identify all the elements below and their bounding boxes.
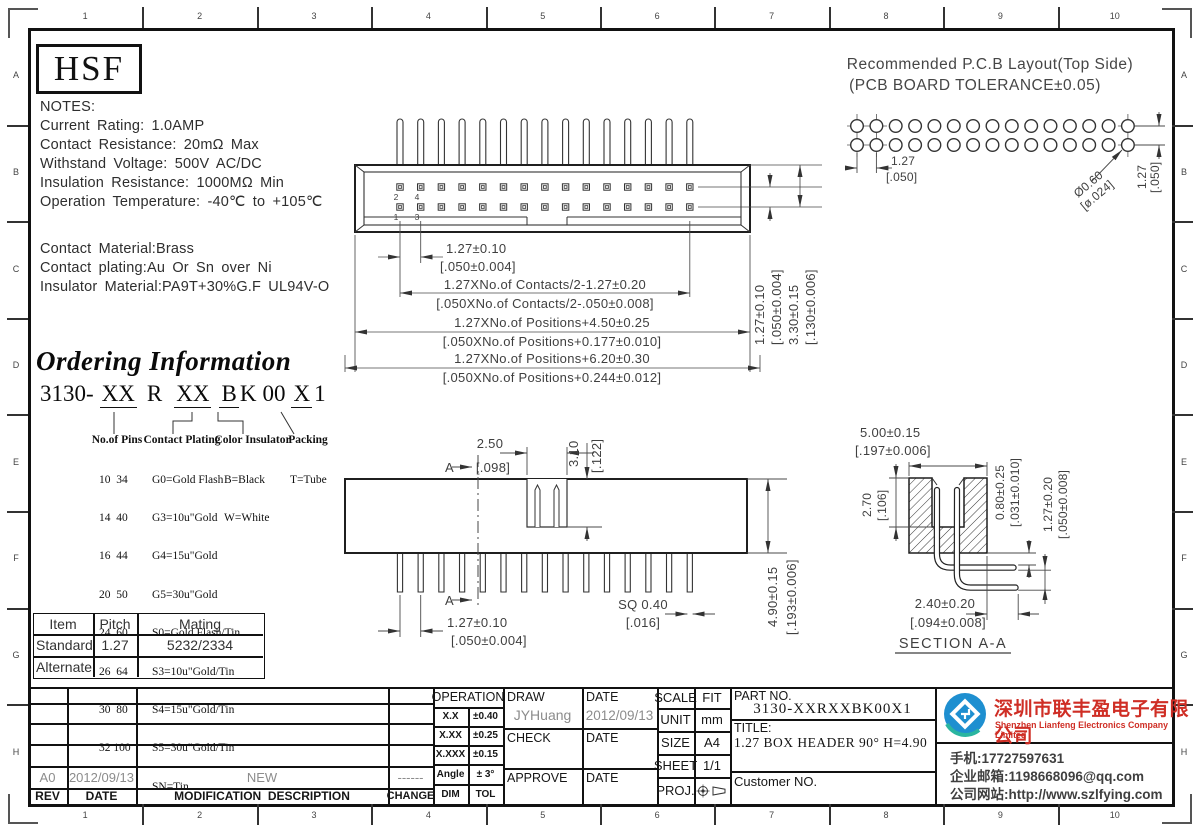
hole-row-2 — [851, 139, 1134, 152]
material-line: Contact Material:Brass — [40, 240, 370, 259]
section-drawing: 5.00±0.15 [.197±0.006] 2.70 [.106] 0.80±… — [855, 420, 1172, 665]
ordering-color-list: B=Black W=White — [224, 448, 269, 550]
contact — [687, 204, 693, 210]
hole — [870, 139, 883, 152]
pcb-layout-drawing: 1.27 [.050] Ø0.60 [ø.024] 1.27 [.050] — [845, 95, 1172, 245]
frame-row-label: C — [11, 264, 21, 274]
hole — [851, 139, 864, 152]
contact — [521, 204, 527, 210]
pin-number: 2 — [394, 192, 399, 202]
tolerance-value: ± 3° — [468, 764, 503, 784]
tolerance-label: DIM — [433, 784, 468, 804]
code-base: 3130- — [40, 381, 94, 407]
frame-row-label: H — [1179, 747, 1189, 757]
corner-mark — [1162, 822, 1192, 824]
frame-col-label: 1 — [80, 11, 90, 21]
table-cell: 5232/2334 — [137, 634, 263, 656]
unit-value: mm — [694, 708, 730, 731]
contact — [397, 204, 403, 210]
contact — [480, 204, 486, 210]
contact — [625, 184, 631, 190]
contact — [687, 184, 693, 190]
frame-row-label: E — [11, 457, 21, 467]
dim-label: [.050±0.004] — [440, 259, 516, 274]
hole — [889, 120, 902, 133]
operation-header: OPERATION — [433, 687, 503, 707]
frame-col-label: 8 — [881, 11, 891, 21]
dim-label: 3.30±0.15 — [786, 285, 801, 345]
frame-col-label: 3 — [309, 11, 319, 21]
list-item: B=Black — [224, 474, 269, 487]
grid-line — [28, 687, 1172, 689]
list-item: S4=15u"Gold/Tin — [152, 704, 240, 717]
hole — [986, 120, 999, 133]
third-angle-icon — [696, 784, 728, 798]
contact — [480, 184, 486, 190]
contact — [542, 204, 548, 210]
ordering-title: Ordering Information — [36, 346, 291, 377]
hole — [1102, 139, 1115, 152]
list-item: 20 50 — [99, 589, 131, 602]
dim-label: 5.00±0.15 — [860, 425, 920, 440]
pin — [604, 119, 610, 165]
hsf-logo: HSF — [36, 44, 142, 94]
check-label: CHECK — [507, 731, 551, 745]
grid-line — [503, 728, 657, 730]
frame-row-label: G — [11, 650, 21, 660]
frame-tick — [943, 7, 945, 28]
pin — [522, 553, 527, 592]
contact — [418, 184, 424, 190]
frame-tick — [142, 804, 144, 825]
pin — [667, 553, 672, 592]
code-color: B — [219, 381, 238, 408]
frame-col-label: 7 — [767, 810, 777, 820]
contact — [438, 204, 444, 210]
dim-label: 1.27XNo.of Contacts/2-1.27±0.20 — [444, 277, 646, 292]
corner-mark — [8, 8, 38, 10]
dim-label: [.050XNo.of Contacts/2-.050±0.008] — [436, 296, 654, 311]
frame-row-label: A — [11, 70, 21, 80]
frame-tick — [142, 7, 144, 28]
dim-label: [.050] — [886, 170, 917, 184]
frame-tick — [1172, 221, 1193, 223]
corner-mark — [1190, 8, 1192, 38]
part-no-value: 3130-XXRXXBK00X1 — [730, 700, 935, 719]
company-email: 企业邮箱:1198668096@qq.com — [950, 765, 1144, 785]
pin — [460, 553, 465, 592]
company-logo-icon — [941, 690, 989, 743]
dim-label: [.050] — [1148, 162, 1162, 193]
material-block: Contact Material:Brass Contact plating:A… — [40, 240, 370, 297]
pin — [625, 119, 631, 165]
notes-heading: NOTES: — [40, 98, 370, 117]
date-label: DATE — [586, 771, 618, 785]
dim-label: [.050±0.008] — [1056, 470, 1070, 539]
dim-label: 3.10 — [566, 440, 581, 467]
scale-label: SCALE — [657, 687, 694, 708]
frame-row-label: B — [1179, 167, 1189, 177]
frame-col-label: 10 — [1110, 810, 1120, 820]
contact — [397, 184, 403, 190]
projection-icon — [694, 777, 730, 804]
dim-label: 1.27±0.10 — [752, 285, 767, 345]
contact — [604, 204, 610, 210]
pin — [583, 119, 589, 165]
tolerance-label: X.XX — [433, 726, 468, 745]
pcb-subtitle: (PCB BOARD TOLERANCE±0.05) — [780, 77, 1170, 95]
revision-rev: A0 — [28, 766, 67, 788]
hole — [889, 139, 902, 152]
hole-row-1 — [851, 120, 1134, 133]
frame-col-label: 4 — [423, 11, 433, 21]
ordering-leader-lines — [90, 406, 350, 436]
company-phone: 手机:17727597631 — [950, 747, 1064, 767]
bottom-pins — [397, 553, 692, 592]
dim-label: 1.27 — [1135, 165, 1149, 189]
revision-header: DATE — [67, 788, 136, 804]
hole — [909, 120, 922, 133]
pin — [459, 119, 465, 165]
grid-line — [28, 723, 433, 725]
frame-tick — [371, 7, 373, 28]
dim-label: [.106] — [875, 490, 889, 521]
tolerance-value: ±0.40 — [468, 707, 503, 726]
pin — [439, 553, 444, 592]
pin — [604, 553, 609, 592]
pcb-title: Recommended P.C.B Layout(Top Side) — [795, 56, 1185, 74]
pin — [625, 553, 630, 592]
sheet-label: SHEET — [657, 754, 694, 777]
frame-tick — [257, 804, 259, 825]
dim-label: 1.27 — [891, 154, 915, 168]
revision-description: NEW — [136, 766, 388, 788]
frame-row-label: C — [1179, 264, 1189, 274]
frame-tick — [714, 7, 716, 28]
contact — [438, 184, 444, 190]
frame-col-label: 1 — [80, 810, 90, 820]
dim-label: 1.27±0.10 — [446, 241, 506, 256]
frame-row-label: F — [1179, 553, 1189, 563]
corner-mark — [8, 794, 10, 824]
frame-tick — [7, 221, 28, 223]
contact — [666, 184, 672, 190]
top-view-drawing: 2 4 1 3 1.27±0.10 [.050±0.004] 1.27XNo.o… — [340, 105, 840, 397]
hole — [967, 120, 980, 133]
size-value: A4 — [694, 731, 730, 754]
date-label: DATE — [586, 731, 618, 745]
hole — [870, 120, 883, 133]
sheet-value: 1/1 — [694, 754, 730, 777]
list-item: G4=15u"Gold — [152, 550, 240, 563]
contact — [500, 204, 506, 210]
ordering-part-code: 3130- XX R XX B K 00 X 1 — [40, 381, 326, 408]
contact — [562, 184, 568, 190]
corner-mark — [8, 822, 38, 824]
grid-line — [730, 771, 935, 773]
notes-line: Current Rating: 1.0AMP — [40, 117, 370, 136]
frame-col-label: 7 — [767, 11, 777, 21]
frame-col-label: 9 — [995, 11, 1005, 21]
code-k: K — [240, 381, 257, 407]
frame-col-label: 5 — [538, 810, 548, 820]
frame-row-label: B — [11, 167, 21, 177]
frame-tick — [600, 7, 602, 28]
frame-row-label: E — [1179, 457, 1189, 467]
dim-label: 1.27±0.10 — [447, 615, 507, 630]
ordering-packing-list: T=Tube — [290, 448, 327, 512]
pin — [480, 119, 486, 165]
contact — [645, 184, 651, 190]
hole — [928, 120, 941, 133]
frame-tick — [600, 804, 602, 825]
frame-row-label: G — [1179, 650, 1189, 660]
frame-tick — [486, 804, 488, 825]
dim-label: 2.40±0.20 — [915, 596, 975, 611]
tolerance-label: X.XXX — [433, 745, 468, 764]
grid-line — [935, 687, 937, 804]
list-item: 30 80 — [99, 704, 131, 717]
dim-label: 2.70 — [860, 493, 874, 517]
frame-row-label: H — [11, 747, 21, 757]
hole — [1083, 120, 1096, 133]
dim-label: 1.27±0.20 — [1041, 477, 1055, 532]
frame-tick — [714, 804, 716, 825]
frame-tick — [7, 125, 28, 127]
draw-value: JYHuang — [503, 702, 582, 728]
contact — [500, 184, 506, 190]
pin — [542, 119, 548, 165]
frame-col-label: 4 — [423, 810, 433, 820]
notes-block: NOTES: Current Rating: 1.0AMP Contact Re… — [40, 98, 370, 212]
dim-label: SQ 0.40 — [618, 597, 668, 612]
hole — [1083, 139, 1096, 152]
table-cell: Alternate — [36, 656, 93, 677]
frame-tick — [7, 511, 28, 513]
material-line: Insulator Material:PA9T+30%G.F UL94V-O — [40, 278, 370, 297]
pin — [645, 119, 651, 165]
contact — [583, 184, 589, 190]
hole — [948, 139, 961, 152]
hole — [851, 120, 864, 133]
hole — [967, 139, 980, 152]
contact-row-1 — [397, 184, 693, 190]
approve-label: APPROVE — [507, 771, 567, 785]
company-name-en: Shenzhen Lianfeng Electronics Company Li… — [995, 720, 1200, 740]
code-plating: XX — [174, 381, 211, 408]
dim-label: [.050XNo.of Positions+0.177±0.010] — [443, 334, 662, 349]
revision-header: REV — [28, 788, 67, 804]
contact — [459, 204, 465, 210]
frame-tick — [829, 804, 831, 825]
frame-row-label: D — [1179, 360, 1189, 370]
pin — [542, 553, 547, 592]
hole — [1006, 139, 1019, 152]
frame-col-label: 9 — [995, 810, 1005, 820]
frame-col-label: 3 — [309, 810, 319, 820]
frame-tick — [257, 7, 259, 28]
table-cell: Standard — [36, 634, 93, 656]
revision-change: ------ — [388, 766, 433, 788]
frame-col-label: 10 — [1110, 11, 1120, 21]
notes-line: Operation Temperature: -40℃ to +105℃ — [40, 193, 370, 212]
projection-label: PROJ. — [657, 777, 694, 804]
frame-tick — [829, 7, 831, 28]
frame-tick — [7, 318, 28, 320]
pin — [584, 553, 589, 592]
dim-label: [.122] — [589, 439, 604, 473]
dim-label: 1.27XNo.of Positions+6.20±0.30 — [454, 351, 650, 366]
frame-row-label: F — [11, 553, 21, 563]
notes-line: Insulation Resistance: 1000MΩ Min — [40, 174, 370, 193]
code-packing: X — [291, 381, 312, 408]
code-00: 00 — [262, 381, 285, 407]
hole — [928, 139, 941, 152]
frame-tick — [1058, 7, 1060, 28]
hole — [1044, 120, 1057, 133]
list-item: W=White — [224, 512, 269, 525]
dim-label: [.098] — [476, 460, 510, 475]
hole — [1044, 139, 1057, 152]
drawing-sheet: 1122334455667788991010AABBCCDDEEFFGGHH H… — [0, 0, 1200, 832]
frame-tick — [486, 7, 488, 28]
customer-no-label: Customer NO. — [734, 774, 817, 789]
ordering-col-header: Packing — [278, 434, 338, 446]
title-label: TITLE: — [734, 721, 772, 735]
pin — [397, 553, 402, 592]
tolerance-value: ±0.15 — [468, 745, 503, 764]
frame-tick — [7, 704, 28, 706]
top-pins — [397, 119, 693, 165]
frame-col-label: 6 — [652, 11, 662, 21]
corner-mark — [8, 8, 10, 38]
dim-label: [.050±0.004] — [769, 269, 784, 345]
revision-date: 2012/09/13 — [67, 766, 136, 788]
contact — [625, 204, 631, 210]
hole — [986, 139, 999, 152]
hole — [909, 139, 922, 152]
frame-row-label: D — [11, 360, 21, 370]
section-letter: A — [445, 593, 454, 608]
section-letter: A — [445, 460, 454, 475]
hole — [1006, 120, 1019, 133]
table-header: Pitch — [93, 613, 137, 634]
contact — [645, 204, 651, 210]
dim-label: [.197±0.006] — [855, 443, 931, 458]
list-item: G5=30u"Gold — [152, 589, 240, 602]
pin — [418, 119, 424, 165]
contact — [604, 184, 610, 190]
code-1: 1 — [314, 381, 326, 407]
pin — [501, 119, 507, 165]
frame-tick — [371, 804, 373, 825]
grid-line — [28, 744, 433, 746]
table-header: Item — [33, 613, 93, 634]
dim-label: 1.27XNo.of Positions+4.50±0.25 — [454, 315, 650, 330]
pin — [646, 553, 651, 592]
dim-label: [.050±0.004] — [451, 633, 527, 648]
frame-tick — [1172, 511, 1193, 513]
pin-number: 1 — [394, 212, 399, 222]
frame-tick — [7, 608, 28, 610]
contact — [583, 204, 589, 210]
dim-label: [.031±0.010] — [1008, 458, 1022, 527]
front-view-drawing: A A 2.50 [.098] 3.10 [.122] 1.27±0.10 [.… — [340, 415, 820, 680]
frame-tick — [1172, 608, 1193, 610]
frame-tick — [1058, 804, 1060, 825]
contact — [542, 184, 548, 190]
dim-label: 0.80±0.25 — [993, 465, 1007, 520]
pin — [687, 119, 693, 165]
frame-tick — [1172, 414, 1193, 416]
revision-header: MODIFICATION DESCRIPTION — [136, 788, 388, 804]
tolerance-value: TOL — [468, 784, 503, 804]
contact — [562, 204, 568, 210]
contact — [521, 184, 527, 190]
grid-line — [28, 703, 433, 705]
notes-line: Contact Resistance: 20mΩ Max — [40, 136, 370, 155]
dim-label: [.193±0.006] — [784, 559, 799, 635]
pin — [501, 553, 506, 592]
unit-label: UNIT — [657, 708, 694, 731]
corner-mark — [1190, 794, 1192, 824]
corner-mark — [1162, 8, 1192, 10]
section-label: SECTION A-A — [899, 636, 1007, 652]
pin — [397, 119, 403, 165]
list-item: T=Tube — [290, 474, 327, 487]
scale-value: FIT — [694, 687, 730, 708]
frame-col-label: 2 — [195, 11, 205, 21]
table-header: Mating — [137, 613, 263, 634]
hole — [1064, 120, 1077, 133]
hole — [1025, 139, 1038, 152]
size-label: SIZE — [657, 731, 694, 754]
hole — [1102, 120, 1115, 133]
table-cell: 1.27 — [93, 634, 137, 656]
frame-tick — [1172, 125, 1193, 127]
frame-col-label: 6 — [652, 810, 662, 820]
pin — [563, 119, 569, 165]
pin — [418, 553, 423, 592]
notes-line: Withstand Voltage: 500V AC/DC — [40, 155, 370, 174]
tolerance-value: ±0.25 — [468, 726, 503, 745]
dim-label: [.050XNo.of Positions+0.244±0.012] — [443, 370, 662, 385]
pin — [666, 119, 672, 165]
dim-label: [.016] — [626, 615, 660, 630]
hole — [948, 120, 961, 133]
hole — [1025, 120, 1038, 133]
frame-col-label: 5 — [538, 11, 548, 21]
material-line: Contact plating:Au Or Sn over Ni — [40, 259, 370, 278]
list-item: 16 44 — [99, 550, 131, 563]
frame-tick — [943, 804, 945, 825]
contact — [418, 204, 424, 210]
date-value: 2012/09/13 — [582, 702, 657, 728]
list-item: 10 34 — [99, 474, 131, 487]
code-pins: XX — [100, 381, 137, 408]
title-value: 1.27 BOX HEADER 90° H=4.90 — [734, 735, 927, 751]
pin-number: 4 — [415, 192, 420, 202]
pin-number: 3 — [415, 212, 420, 222]
dim-label: [.094±0.008] — [910, 615, 986, 630]
pin — [563, 553, 568, 592]
frame-tick — [1172, 318, 1193, 320]
frame-tick — [7, 414, 28, 416]
pin — [438, 119, 444, 165]
hole — [1122, 139, 1135, 152]
revision-header: CHANGE — [388, 788, 433, 804]
pin — [480, 553, 485, 592]
